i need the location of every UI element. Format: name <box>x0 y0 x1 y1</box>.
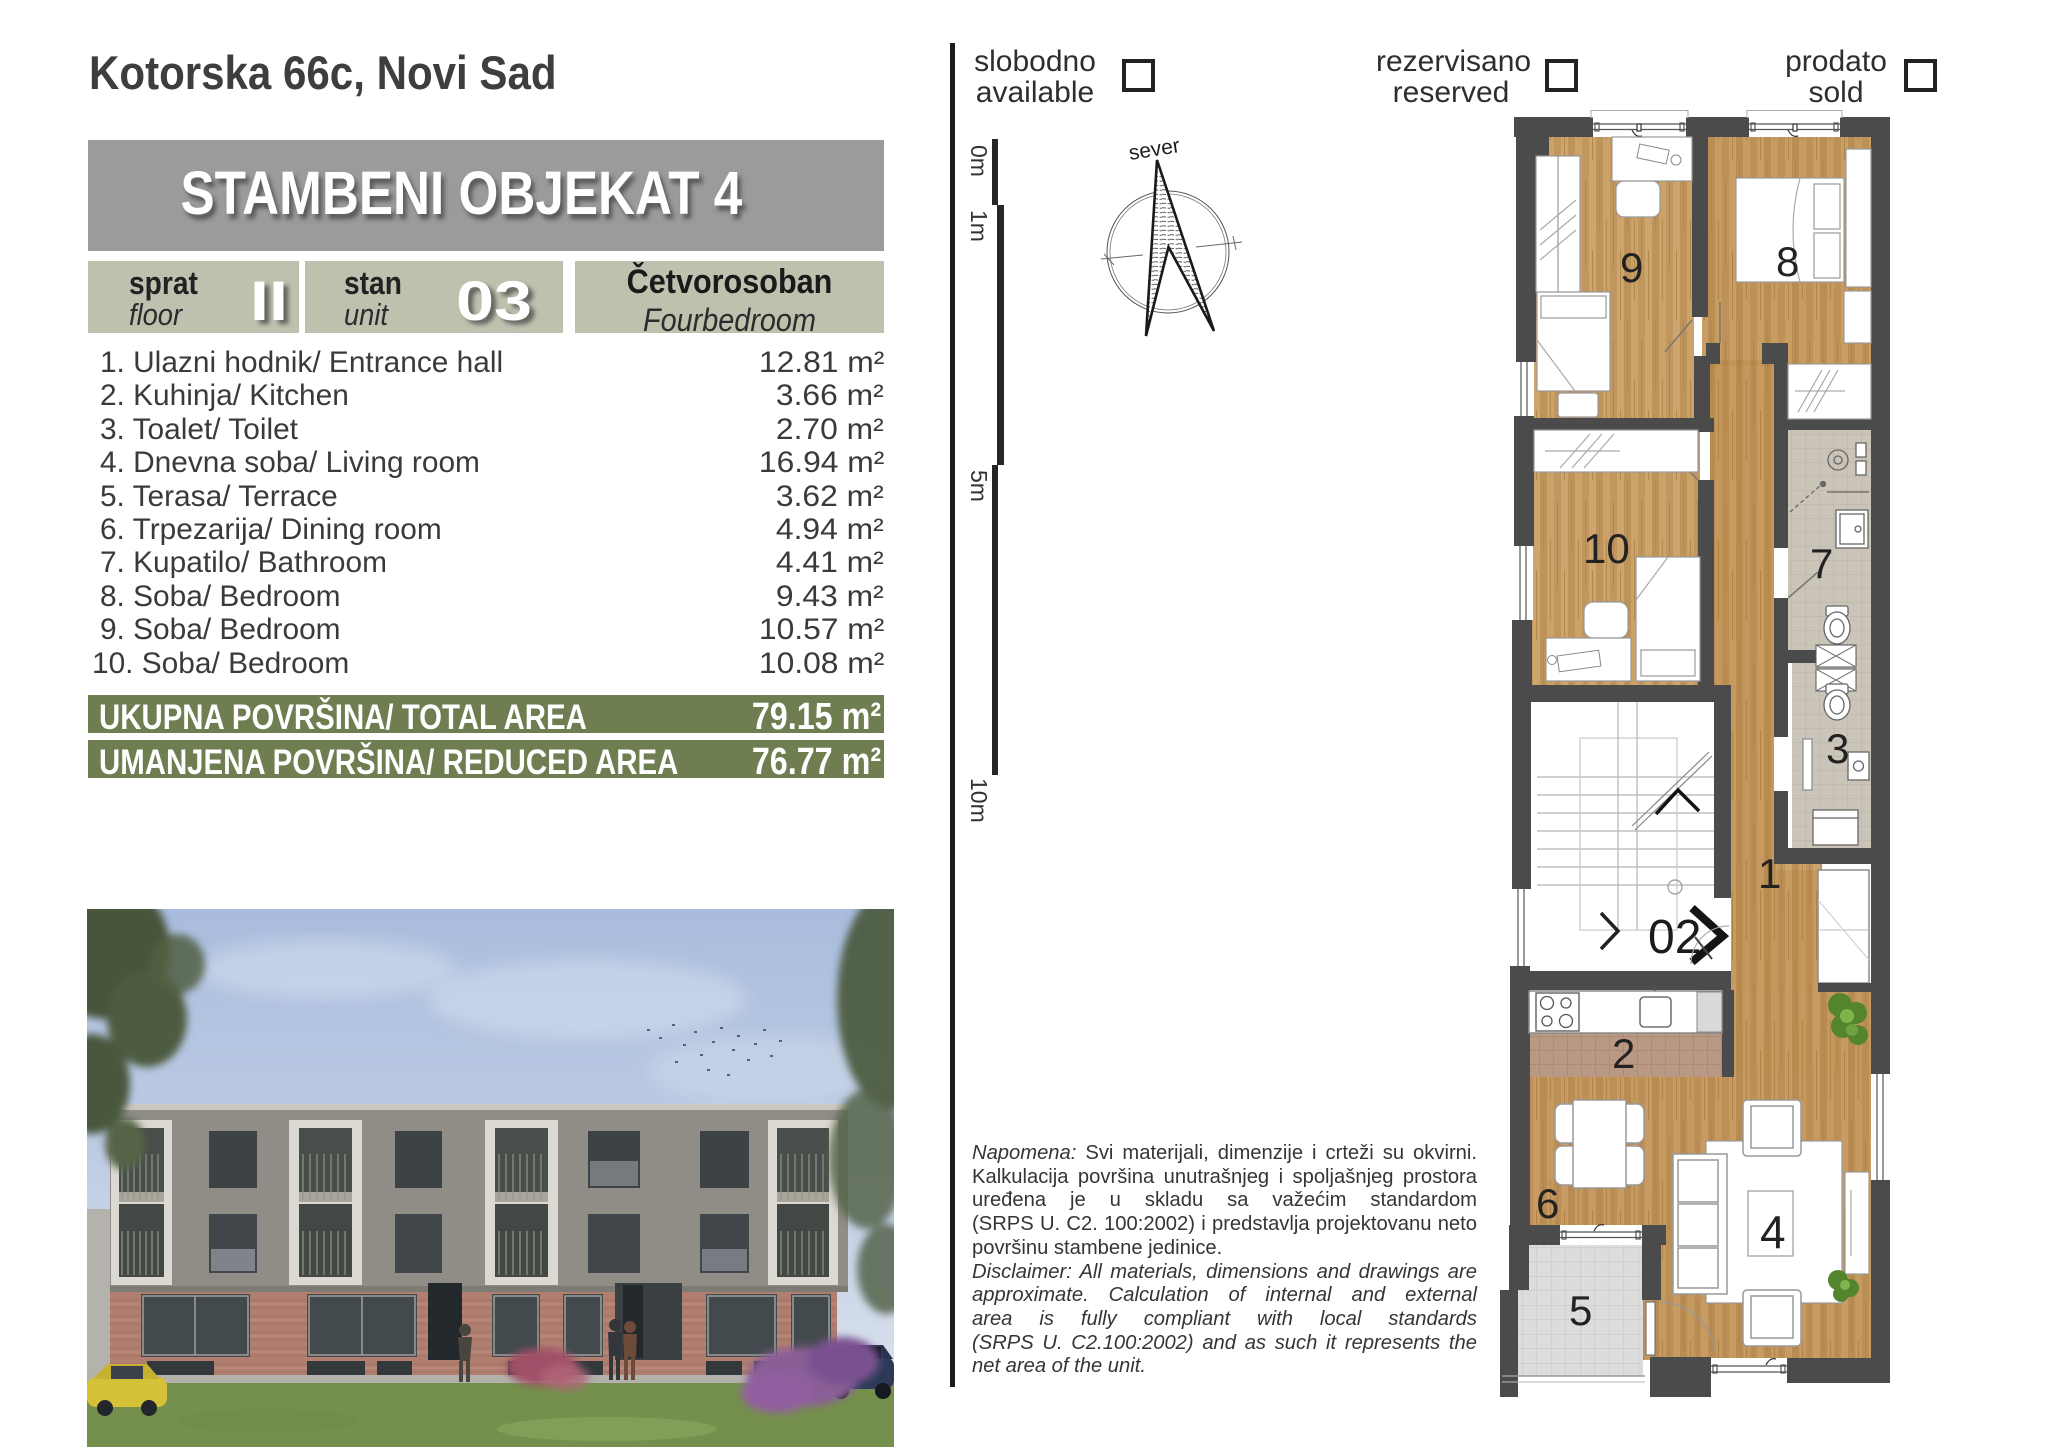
svg-text:2: 2 <box>1612 1030 1635 1077</box>
svg-text:5: 5 <box>1569 1287 1592 1334</box>
svg-text:1m: 1m <box>966 210 992 242</box>
svg-text:6: 6 <box>1536 1180 1559 1227</box>
svg-text:4: 4 <box>1760 1206 1786 1258</box>
svg-text:9: 9 <box>1620 244 1643 291</box>
svg-text:10m: 10m <box>966 778 992 823</box>
svg-text:8: 8 <box>1776 238 1799 285</box>
svg-text:5m: 5m <box>966 470 992 502</box>
svg-text:0m: 0m <box>966 145 992 177</box>
svg-text:1: 1 <box>1758 850 1781 897</box>
svg-text:3: 3 <box>1826 725 1849 772</box>
svg-text:sever: sever <box>1127 134 1181 165</box>
svg-text:10: 10 <box>1583 525 1630 572</box>
svg-text:7: 7 <box>1810 540 1833 587</box>
